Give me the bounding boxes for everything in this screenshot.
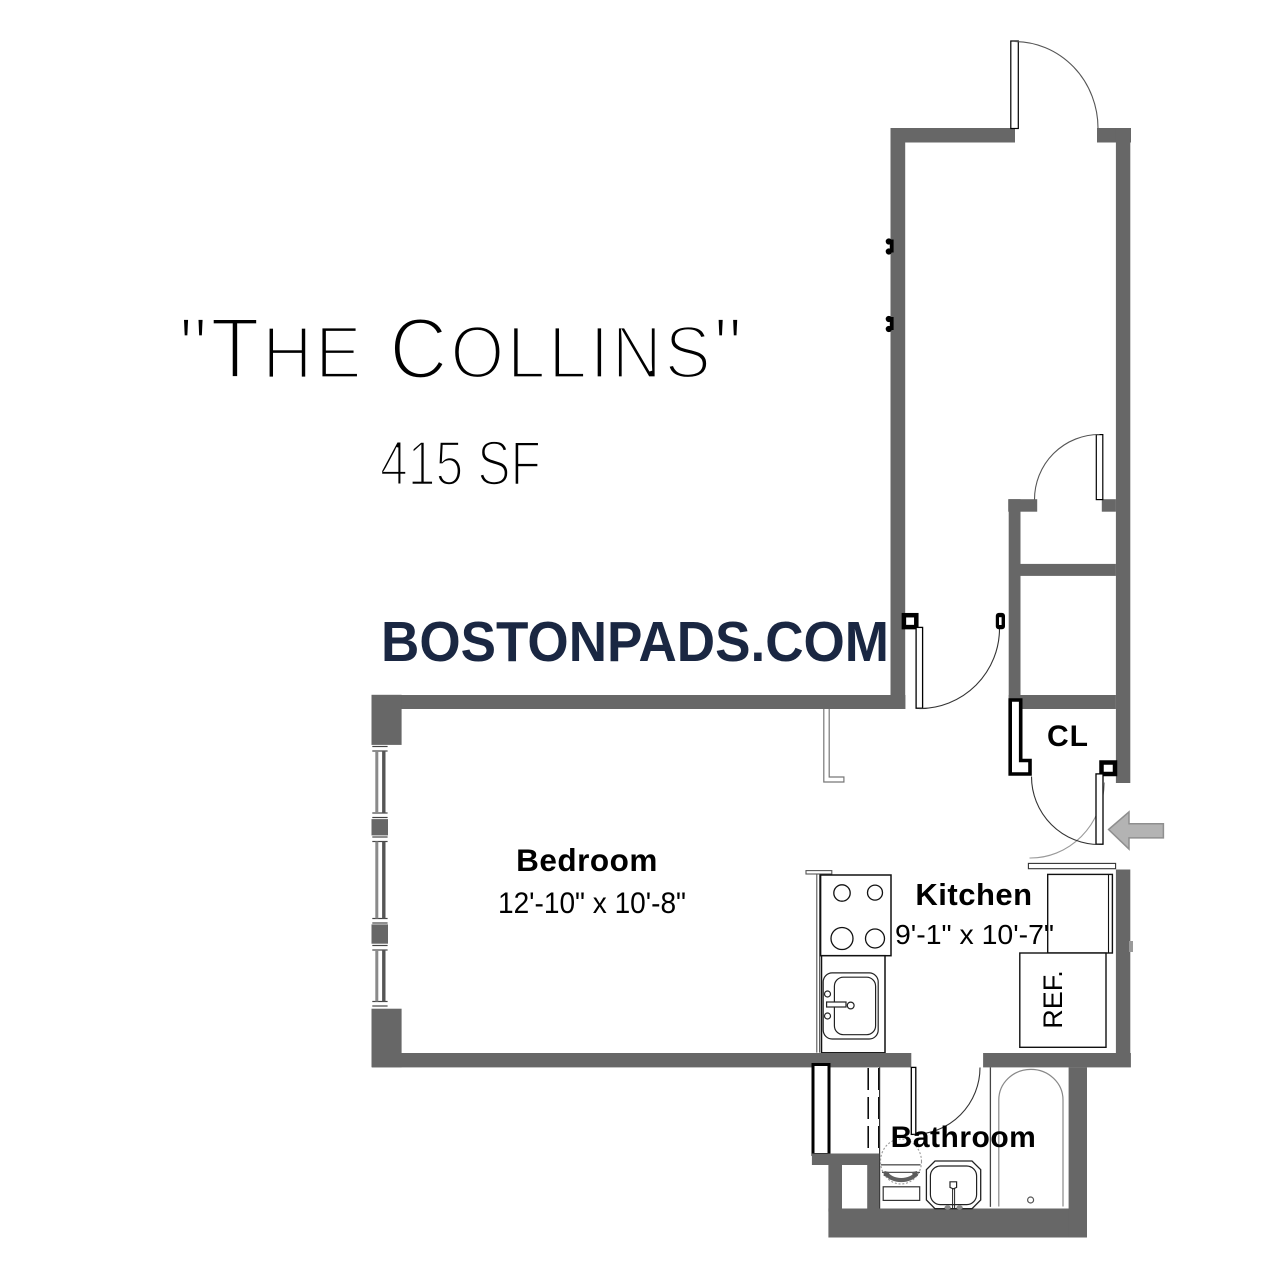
svg-text:Bedroom: Bedroom [516,842,658,878]
svg-text:9'-1" x 10'-7": 9'-1" x 10'-7" [895,919,1054,950]
svg-text:Kitchen: Kitchen [915,877,1032,912]
svg-text:12'-10" x 10'-8": 12'-10" x 10'-8" [498,887,686,920]
svg-text:"THE COLLINS": "THE COLLINS" [179,301,745,397]
svg-text:BOSTONPADS.COM: BOSTONPADS.COM [381,610,889,674]
svg-text:Bathroom: Bathroom [891,1121,1037,1154]
svg-text:CL: CL [1047,720,1089,753]
svg-text:REF.: REF. [1038,970,1068,1029]
svg-text:415 SF: 415 SF [380,429,541,499]
